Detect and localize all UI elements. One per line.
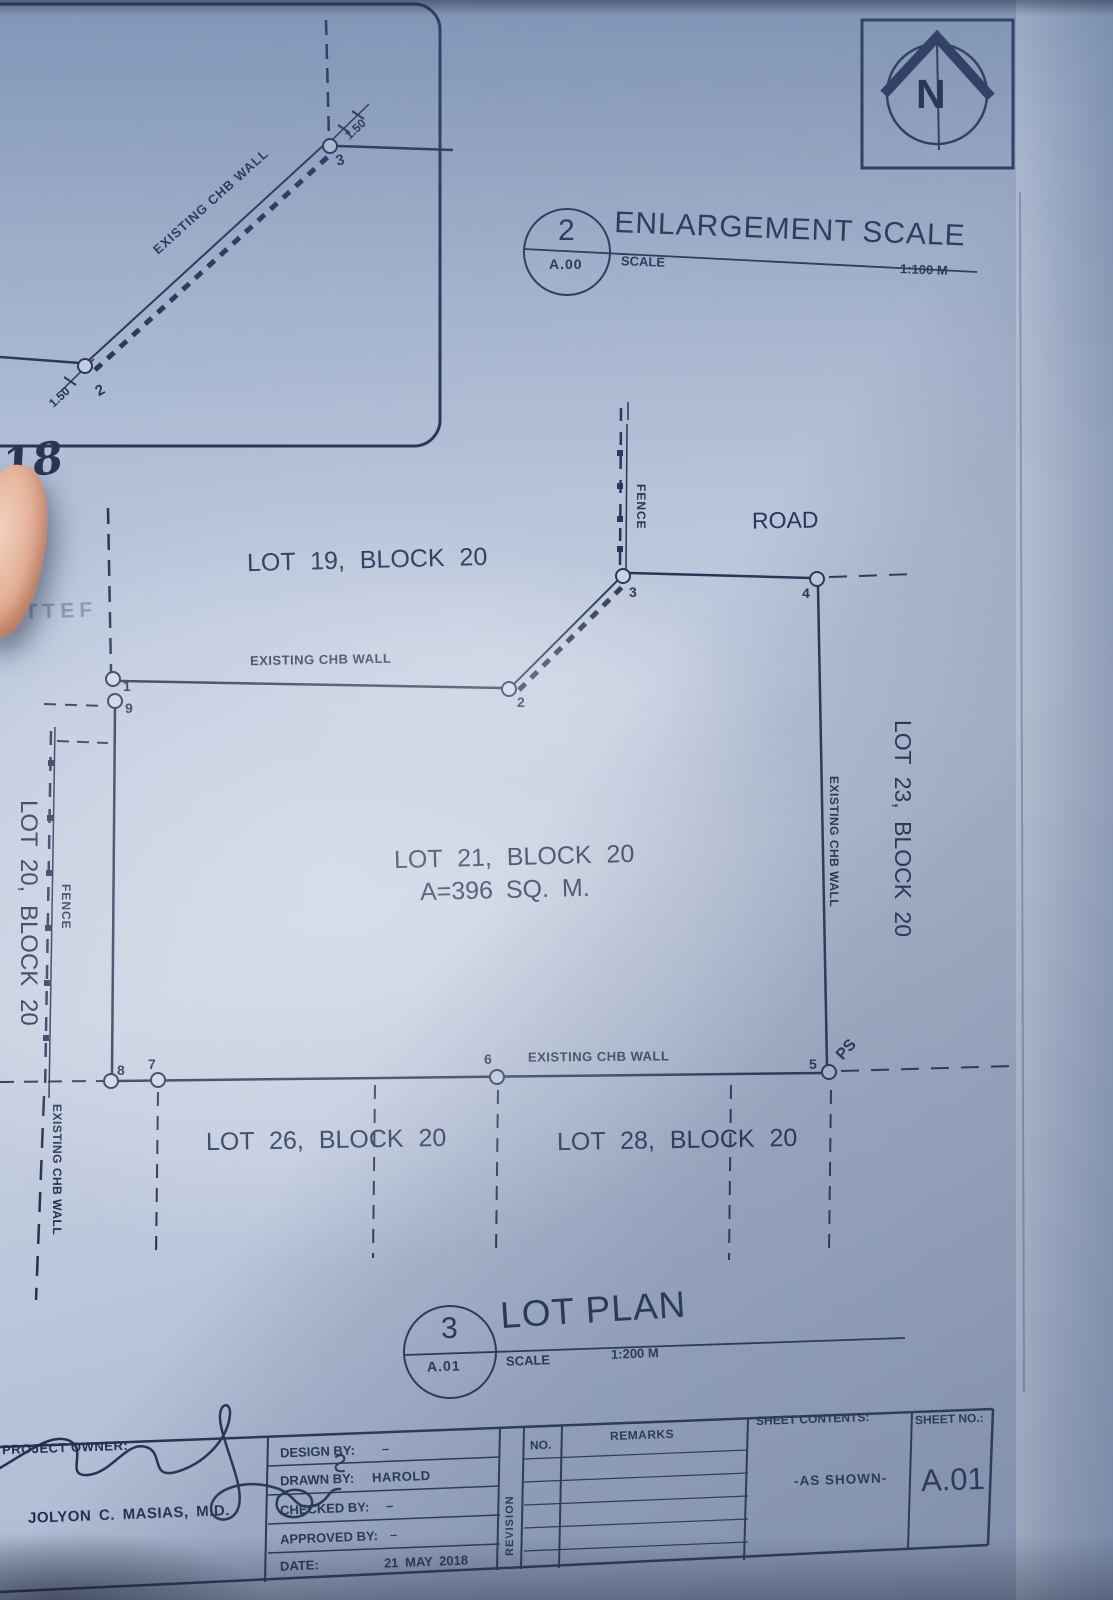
wall-bottom-label: EXISTING CHB WALL xyxy=(528,1048,670,1064)
road-label: ROAD xyxy=(752,506,819,534)
lotplan-bubble-sheet: A.01 xyxy=(427,1357,461,1374)
point-marker xyxy=(822,1065,836,1079)
design-by-label: DESIGN BY: xyxy=(280,1443,355,1461)
drawn-by-value: HAROLD xyxy=(372,1468,431,1485)
revision-label: REVISION xyxy=(504,1495,516,1556)
enlargement-bubble-sheet: A.00 xyxy=(549,256,583,272)
lot21-area: A=396 SQ. M. xyxy=(420,874,590,907)
design-by-value: – xyxy=(382,1441,390,1456)
point-label-8: 8 xyxy=(117,1062,125,1078)
point-marker xyxy=(106,672,120,686)
point-label-5: 5 xyxy=(809,1056,817,1072)
point-marker xyxy=(616,569,630,583)
point-marker xyxy=(104,1074,118,1088)
north-letter: N xyxy=(916,71,946,118)
date-label: DATE: xyxy=(280,1557,319,1573)
point-marker xyxy=(502,682,516,696)
point-label-9: 9 xyxy=(125,700,133,716)
wall-right-label: EXISTING CHB WALL xyxy=(827,776,841,907)
fence-top-label: FENCE xyxy=(634,484,648,530)
drawn-by-label: DRAWN BY: xyxy=(280,1471,355,1489)
fence-left-label: FENCE xyxy=(59,884,73,930)
lotplan-bubble-number: 3 xyxy=(440,1312,458,1347)
enlargement-bubble-number: 2 xyxy=(558,214,575,248)
paper-fold-line xyxy=(1020,192,1024,1392)
title-block-grid xyxy=(0,1409,993,1592)
lot28-label: LOT 28, BLOCK 20 xyxy=(557,1124,798,1157)
lot23-label: LOT 23, BLOCK 20 xyxy=(889,720,916,937)
point-label-4: 4 xyxy=(802,585,810,601)
no-column-label: NO. xyxy=(530,1438,552,1453)
approved-by-value: – xyxy=(390,1527,398,1542)
point-label-7: 7 xyxy=(148,1056,156,1072)
enlargement-detail xyxy=(0,4,453,446)
point-marker xyxy=(490,1070,504,1084)
point-label-6: 6 xyxy=(484,1051,492,1067)
lotplan-scale-value: 1:200 M xyxy=(611,1345,659,1362)
wall-top-label: EXISTING CHB WALL xyxy=(250,651,392,668)
wall-left-label: EXISTING CHB WALL xyxy=(50,1104,64,1235)
sheet-no-value: A.01 xyxy=(920,1461,985,1499)
point-marker xyxy=(151,1073,165,1087)
enlargement-scale-label: SCALE xyxy=(621,253,666,270)
point-marker xyxy=(78,359,92,373)
enlargement-scale-value: 1:100 M xyxy=(900,261,948,278)
lot20-label: LOT 20, BLOCK 20 xyxy=(14,800,42,1026)
point-label-1: 1 xyxy=(123,678,131,694)
lot26-label: LOT 26, BLOCK 20 xyxy=(206,1124,447,1157)
point-marker xyxy=(323,139,337,153)
lotplan-scale-label: SCALE xyxy=(506,1352,551,1369)
point-label-3: 3 xyxy=(629,584,637,600)
point-marker xyxy=(108,694,122,708)
checked-by-value: – xyxy=(386,1498,394,1513)
point-marker xyxy=(810,572,824,586)
remarks-column-label: REMARKS xyxy=(610,1427,675,1443)
sheet-no-label: SHEET NO.: xyxy=(915,1411,984,1427)
point-label-2: 2 xyxy=(517,694,525,710)
lot-plan-sheet-photo: EXISTING CHB WALL 1.50 1.50 3 2 2 A.00 E… xyxy=(0,0,1113,1600)
